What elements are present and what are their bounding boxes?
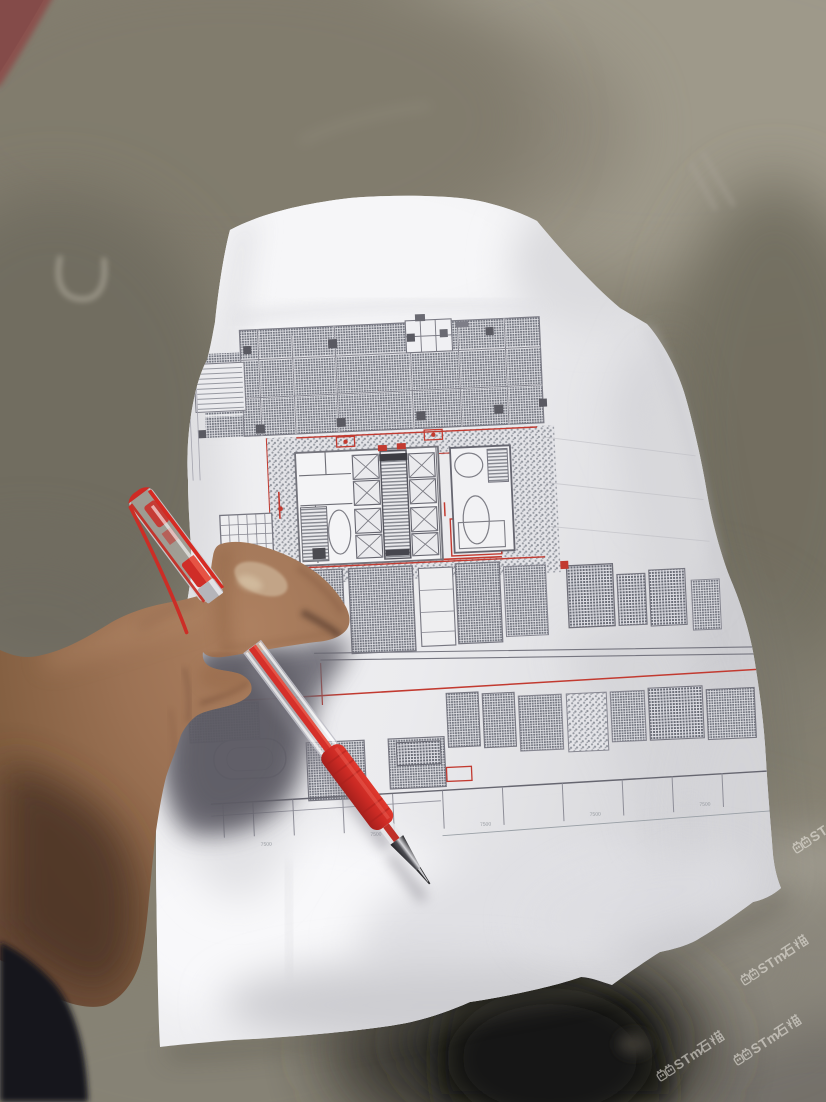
svg-text:7500: 7500 [480, 821, 492, 828]
svg-text:7500: 7500 [699, 802, 711, 809]
svg-text:7500: 7500 [261, 841, 273, 848]
svg-text:7500: 7500 [590, 812, 602, 819]
